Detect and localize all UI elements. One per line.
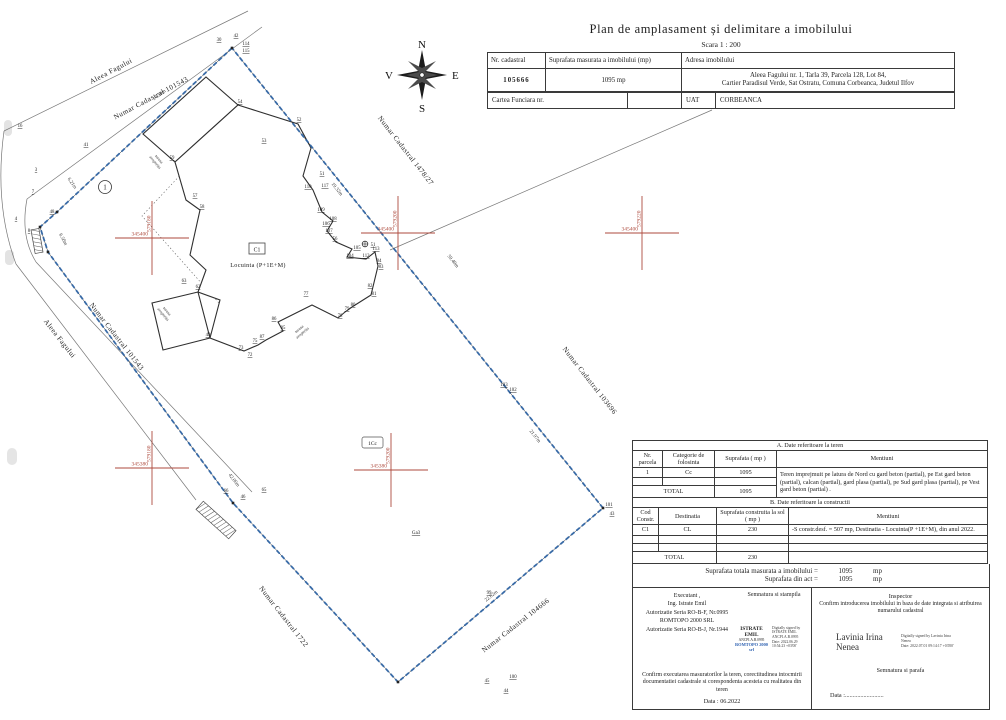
grid-y-coordinate: 579200 [386,447,392,464]
cadastral-plan-page: N S E V 34540057918034540057920034540057… [0,0,1006,720]
adjacent-parcel-label: Numar Cadastral 1722 [257,585,310,649]
tb-r1-suprafata: 230 [717,525,789,535]
adresa-line1: Aleea Fagului nr. 1, Tarla 39, Parcela 1… [685,72,951,80]
tb-h-destinatia: Destinatia [659,508,717,525]
adjacent-parcel-label: Aleea Fagului [42,318,77,360]
nr-cadastral-value: 105666 [488,69,546,92]
executant-line: Executant , [633,592,741,601]
totals-block: Suprafata totala masurata a imobilului =… [632,564,990,588]
col-nr-cadastral: Nr. cadastral [488,53,546,69]
survey-point-label: 54 [238,100,243,105]
tb-empty-cell [659,535,717,543]
survey-point-label: 103 [500,383,508,388]
semnatura-stampila-label: Semnatura si stampila [739,592,809,598]
survey-point-label: 106 [322,222,330,227]
survey-point-label: 75 [253,339,258,344]
adjacent-parcel-label: Numar Cadastral 1478/27 [376,115,435,188]
adjacent-parcel-label: Numar Cadastral 101543 [88,301,146,372]
survey-point-label: 101 [605,503,613,508]
stamp-date: Date: 2022.06.29 10:54:23 +03'00' [772,640,809,649]
survey-point-label: 65 [262,488,267,493]
ta-h-mentiuni: Mentiuni [777,451,988,468]
grid-y-coordinate: 579180 [147,215,153,232]
tb-total-value: 230 [717,551,789,563]
survey-point-label: 114 [242,42,250,47]
survey-point-label: 99 [487,591,492,596]
compass-center [420,73,424,77]
survey-point-label: 59 [170,156,175,161]
compass-west-label: V [385,70,393,82]
terrace-wing-outline [152,292,210,350]
survey-point-label: 117 [321,184,329,189]
boundary-vertex [39,226,42,229]
station-label: 51 [371,243,376,248]
stamp-details-text: Digitally signed by ISTRATE EMIL ANCPI.A… [772,626,809,640]
survey-point-label: 58 [200,205,205,210]
parcel-number: 1 [103,184,107,192]
data-tables-panel: A. Date referitoare la teren Nr. parcela… [632,440,988,710]
dimension-label: 6.50m [57,233,67,247]
ga3-label: Ga3 [412,531,421,536]
survey-point-label: 87 [260,335,265,340]
survey-point-label: 72 [248,353,253,358]
stamp-company: ROMTOPO 2000 srl [733,642,770,652]
survey-point-label: 80 [351,303,356,308]
adjacent-parcel-label: Numar Cadastral 103696 [561,345,619,416]
parcel-boundary-base [40,48,603,682]
terrace-label: terasaacoperita [291,322,310,340]
survey-point-label: 51 [320,172,325,177]
survey-point-label: 30 [217,38,222,43]
tb-r1-mentiuni: -S constr.desf. = 507 mp, Destinatia - L… [789,525,988,535]
boundary-vertex [47,251,50,254]
grid-y-coordinate: 579180 [147,445,153,462]
survey-point-label: 16 [18,124,23,129]
ta-r1-categorie: Cc [663,468,715,478]
grid-y-coordinate: 579220 [637,210,643,227]
ta-empty-cell [633,478,663,486]
tb-r1-destinatia: CL [659,525,717,535]
survey-point-label: 48 [50,210,55,215]
parcel-boundary [40,48,603,682]
boundary-vertex [231,47,234,50]
ta-h-categorie: Categorie de folosinta [663,451,715,468]
executant-line: Autorizatie Seria RO-B-J, Nr.1944 [633,626,741,635]
survey-point-label: 104 [346,254,354,259]
survey-point-label: 62 [196,285,201,290]
boundary-vertex [397,681,400,684]
dimension-label: 59.40m [446,254,459,269]
survey-point-label: 56 [333,237,338,242]
survey-point-label: 85 [281,326,286,331]
survey-point-label: 7 [32,190,35,195]
col-adresa: Adresa imobilului [682,53,955,69]
executant-data-value: 06.2022 [720,698,740,705]
table-teren: A. Date referitoare la teren Nr. parcela… [632,440,988,498]
culvert-symbol [196,501,236,539]
table-constructii-title: B. Date referitoare la constructii [633,498,988,508]
adresa-line2: Cartier Paradisul Verde, Sat Ostratu, Co… [685,80,951,88]
road-edge-line [390,110,712,250]
survey-point-label: 45 [485,679,490,684]
survey-point-label: 115 [242,49,250,54]
document-scale: Scara 1 : 200 [487,40,955,49]
survey-point-label: 86 [272,317,277,322]
signatures-block: Executant , Ing. Istrate Emil Autorizati… [632,588,990,710]
scan-artifact [7,448,17,465]
compass-east-label: E [452,70,459,82]
building-code-label: C1 [254,248,261,254]
table-teren-title: A. Date referitoare la teren [633,441,988,451]
adresa-value: Aleea Fagului nr. 1, Tarla 39, Parcela 1… [682,69,955,92]
survey-point-label: 77 [304,292,309,297]
dimension-label: 21.97m [528,429,541,444]
compass-south-label: S [419,103,425,115]
adjacent-parcel-label: Aleea Fagului [88,57,133,86]
identification-table: Nr. cadastral Suprafata masurata a imobi… [487,52,955,92]
survey-point-label: 44 [504,689,509,694]
tb-total-mentiuni [789,551,988,563]
ta-r1-suprafata: 1095 [715,468,777,478]
inspector-sign-date: Date: 2022.07.01 09:14:17 +03'00' [901,644,959,649]
compass-rose: N S E V [385,39,459,115]
road-corner-curve [1,131,16,264]
survey-point-label: 84 [377,259,382,264]
total-masurata-unit: mp [873,567,903,575]
adjacent-parcel-label: Numar Cadastral 104666 [480,597,551,655]
executant-data: Data : 06.2022 [637,698,807,705]
tb-h-cod: Cod Constr. [633,508,659,525]
building-outline [175,105,378,351]
survey-point-label: 112 [362,254,370,259]
compass-north-label: N [418,39,426,51]
survey-point-label: 83 [379,265,384,270]
scan-artifact [5,250,14,265]
tb-h-suprafata: Suprafata construita la sol ( mp ) [717,508,789,525]
dimension-label: 42.06m [227,473,240,488]
executant-line: Autorizatie Seria RO-B-F, Nr.0995 [633,609,741,618]
survey-point-label: 79 [345,307,350,312]
land-use-label: 1Cc [368,441,377,447]
ta-r1-mentiuni: Teren imprejmuit pe latura de Nord cu ga… [777,468,988,498]
ta-h-parcela: Nr. parcela [633,451,663,468]
survey-point-label: 41 [84,143,89,148]
ta-r1-parcela: 1 [633,468,663,478]
inspector-title: Inspector [812,593,989,600]
stamp-details: Digitally signed by ISTRATE EMIL ANCPI.A… [770,626,809,652]
ta-h-suprafata: Suprafata ( mp ) [715,451,777,468]
cartea-funciara-value [628,93,682,109]
executant-line: Ing. Istrate Emil [633,600,741,609]
total-act-label: Suprafata din act = [633,575,818,583]
building-name-label: Locuinta (P+1E+M) [230,262,286,269]
semnatura-parafa-label: Semnatura si parafa [812,668,989,674]
total-masurata-value: 1095 [818,567,873,575]
survey-point-label: 81 [372,292,377,297]
suprafata-value: 1095 mp [546,69,682,92]
grid-y-coordinate: 579200 [393,210,399,227]
survey-point-label: 63 [182,279,187,284]
ta-total-label: TOTAL [633,486,715,498]
total-masurata-label: Suprafata totala masurata a imobilului = [633,567,818,575]
tb-empty-cell [633,543,659,551]
boundary-vertex [602,507,605,510]
col-suprafata: Suprafata masurata a imobilului (mp) [546,53,682,69]
cartea-funciara-label: Cartea Funciara nr. [488,93,628,109]
survey-point-label: 52 [297,118,302,123]
boundary-vertex [56,211,59,214]
survey-point-label: 49 [206,333,211,338]
inspector-data-label: Data :......................... [830,692,884,699]
survey-point-label: 78 [338,314,343,319]
executant-data-label: Data : [704,698,719,705]
survey-point-label: 100 [509,675,517,680]
survey-point-label: 110 [304,185,312,190]
survey-point-label: 109 [317,208,325,213]
survey-point-label: 43 [610,512,615,517]
total-act-unit: mp [873,575,903,583]
survey-point-label: 8 [28,229,31,234]
survey-point-label: 66 [224,489,229,494]
inspector-sign-details: Digitally signed by Lavinia Irina Nenea … [898,632,959,653]
tb-empty-cell [633,535,659,543]
executant-info: Executant , Ing. Istrate Emil Autorizati… [633,592,741,635]
table-constructii: B. Date referitoare la constructii Cod C… [632,497,988,563]
inspector-confirm-text: Confirm introducerea imobilului in baza … [818,601,983,616]
stamp-name: ISTRATE EMIL [733,626,770,638]
digital-stamp-executant: ISTRATE EMIL ANCPI.A.B.0995 ROMTOPO 2000… [733,626,809,652]
tb-empty-cell [717,535,789,543]
inspector-sign-details-text: Digitally signed by Lavinia Irina Nenea [901,634,959,644]
tb-h-mentiuni: Mentiuni [789,508,988,525]
tb-r1-cod: C1 [633,525,659,535]
survey-point-label: 3 [35,168,38,173]
stamp-left: ISTRATE EMIL ANCPI.A.B.0995 ROMTOPO 2000… [733,626,770,652]
inspector-name: Lavinia Irina Nenea [836,632,898,653]
terrace-label: terasaacoperita [148,151,166,170]
ta-total-value: 1095 [715,486,777,498]
cartea-funciara-table: Cartea Funciara nr. UAT CORBEANCA [487,92,955,109]
tb-empty-cell [789,543,988,551]
survey-point-label: 102 [509,388,517,393]
executant-cell: Executant , Ing. Istrate Emil Autorizati… [633,588,812,709]
survey-point-label: 53 [262,139,267,144]
boundary-vertex [232,502,235,505]
tb-empty-cell [717,543,789,551]
tb-empty-cell [789,535,988,543]
survey-point-label: 82 [368,284,373,289]
survey-point-label: 107 [325,229,333,234]
ta-empty-cell [663,478,715,486]
ta-empty-cell [715,478,777,486]
tb-empty-cell [659,543,717,551]
tb-total-label: TOTAL [633,551,717,563]
survey-point-label: 108 [329,217,337,222]
total-act-value: 1095 [818,575,873,583]
survey-point-label: 46 [241,495,246,500]
dimension-label: 6.21m [66,177,77,190]
document-title: Plan de amplasament și delimitare a imob… [487,22,955,37]
survey-point-label: 42 [234,34,239,39]
inspector-cell: Inspector Confirm introducerea imobilulu… [812,588,989,709]
digital-signature-inspector: Lavinia Irina Nenea Digitally signed by … [836,632,959,653]
survey-point-label: 4 [15,217,18,222]
uat-label: UAT [682,93,716,109]
survey-point-label: 105 [353,246,361,251]
uat-value: CORBEANCA [716,93,955,109]
executant-confirm-text: Confirm executarea masuratorilor la tere… [637,672,807,695]
survey-point-label: 57 [193,194,198,199]
executant-line: ROMTOPO 2000 SRL [633,617,741,626]
survey-point-label: 73 [239,346,244,351]
